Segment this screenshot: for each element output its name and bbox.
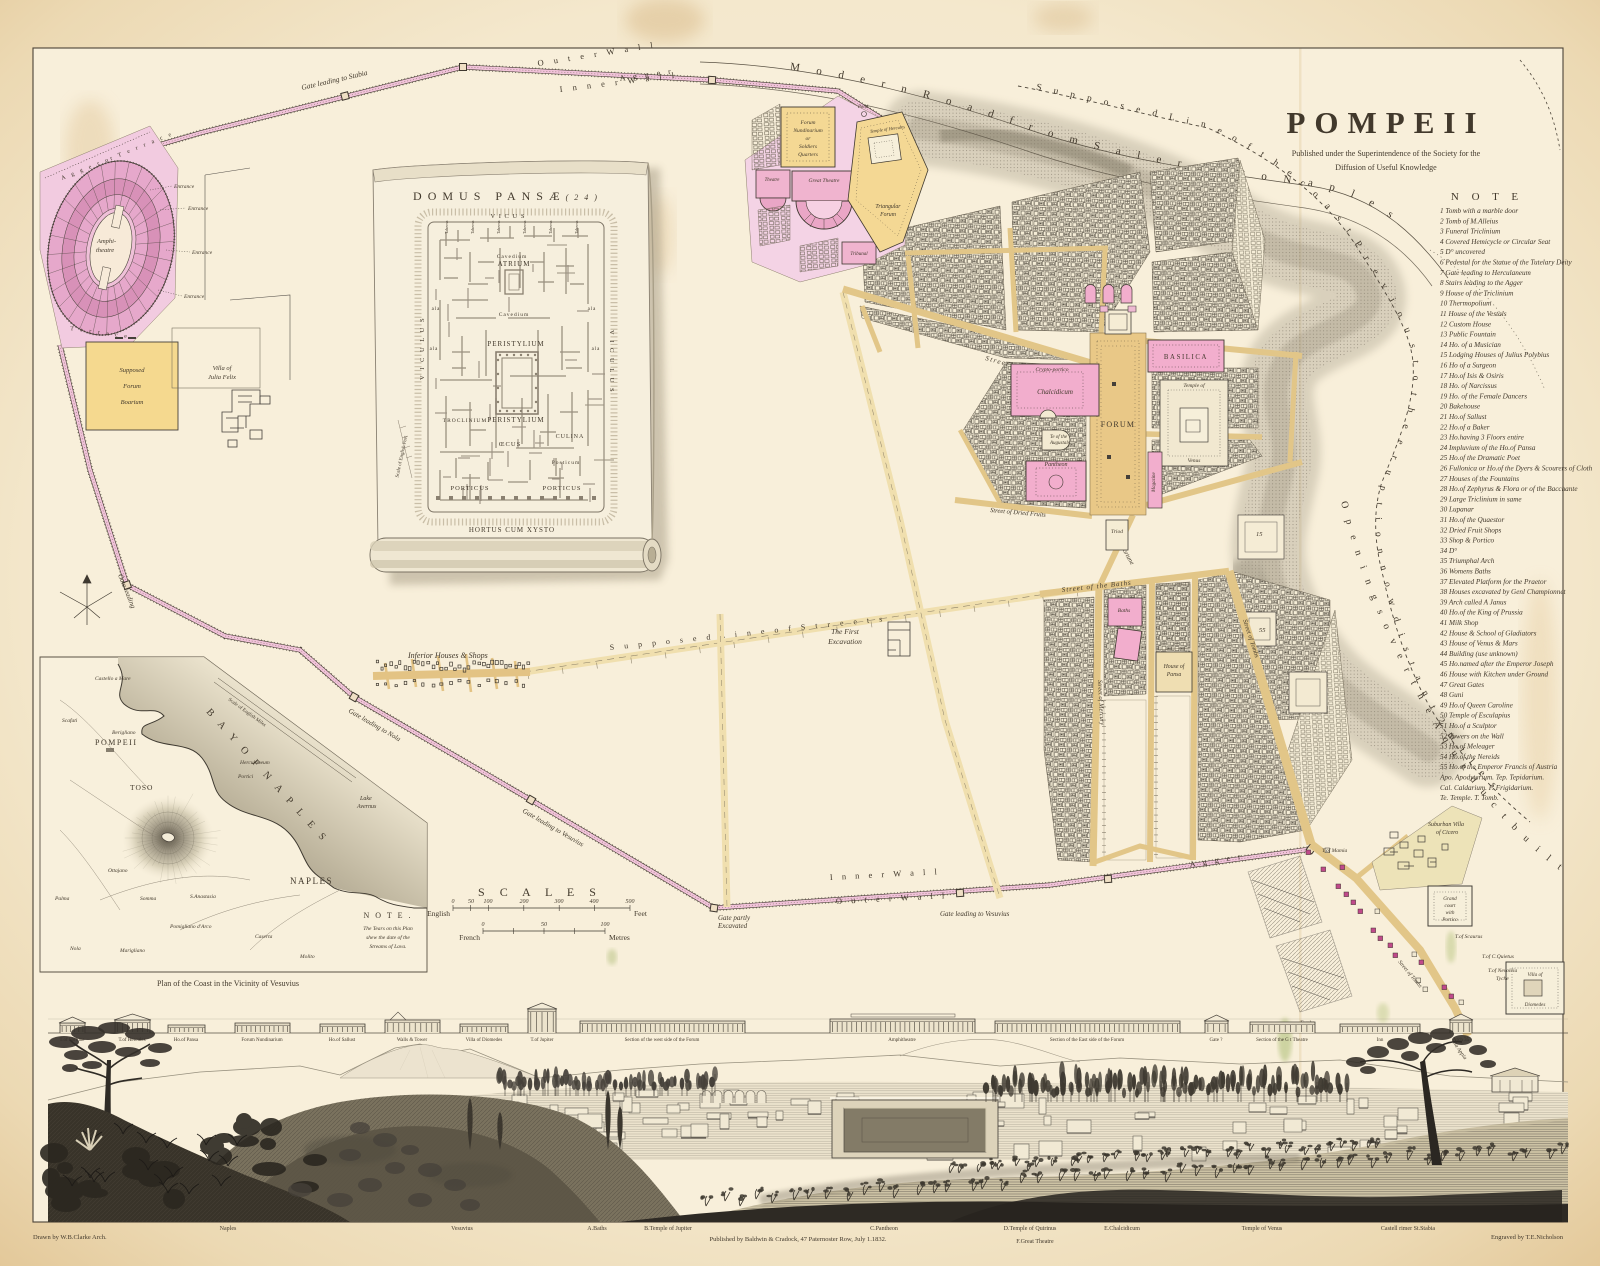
svg-text:Section of the East side of th: Section of the East side of the Forum [1050,1038,1124,1043]
svg-text:Molito: Molito [299,954,315,960]
svg-text:37 Elevated Platform for the P: 37 Elevated Platform for the Praetor [1439,578,1547,586]
svg-text:Feet: Feet [634,909,648,918]
svg-text:Drawn by W.B.Clarke Arch.: Drawn by W.B.Clarke Arch. [33,1234,107,1241]
svg-text:Engraved by T.E.Nicholson: Engraved by T.E.Nicholson [1491,1234,1564,1241]
svg-text:T.of Mamia: T.of Mamia [1322,847,1348,854]
svg-text:15 Lodging Houses of Julius Po: 15 Lodging Houses of Julius Polybius [1440,351,1549,359]
svg-text:Tyche: Tyche [1496,976,1509,982]
svg-text:4 Covered Hemicycle or Circula: 4 Covered Hemicycle or Circular Seat [1440,238,1551,246]
svg-text:49 Ho.of Queen Caroline: 49 Ho.of Queen Caroline [1440,701,1514,709]
svg-text:500: 500 [626,899,635,905]
svg-text:PORTICUS: PORTICUS [450,485,489,492]
svg-text:Te. Temple. T. Tomb.: Te. Temple. T. Tomb. [1440,794,1499,802]
svg-text:Inferior Houses & Shops: Inferior Houses & Shops [407,651,488,660]
svg-text:V I C U S: V I C U S [491,213,526,220]
svg-text:Berigliano: Berigliano [112,730,136,736]
svg-text:Posticum: Posticum [552,460,580,466]
svg-text:22 Ho.of a Baker: 22 Ho.of a Baker [1440,423,1490,431]
svg-text:39 Arch called A Janus: 39 Arch called A Janus [1439,598,1507,606]
svg-text:Published under the Superinten: Published under the Superintendence of t… [1292,149,1481,158]
svg-text:Triod: Triod [1111,529,1123,535]
svg-text:42 House & School of Gladiator: 42 House & School of Gladiators [1440,629,1537,637]
svg-text:14 Ho. of a Musician: 14 Ho. of a Musician [1440,341,1501,349]
svg-text:Published by Baldwin & Cradock: Published by Baldwin & Cradock, 47 Pater… [709,1236,886,1243]
svg-text:Taberna: Taberna [470,220,475,234]
svg-text:Marigliano: Marigliano [119,948,145,954]
svg-text:Herculaneum: Herculaneum [239,760,270,766]
svg-text:47 Great Gates: 47 Great Gates [1440,681,1484,689]
svg-text:300: 300 [554,899,564,905]
svg-text:of Cicero: of Cicero [1436,829,1458,836]
svg-text:FORUM: FORUM [1101,420,1135,429]
svg-text:ala: ala [430,347,439,352]
svg-text:Chalcidicum: Chalcidicum [1037,388,1073,396]
svg-text:50: 50 [468,899,474,905]
svg-text:Scafati: Scafati [62,717,78,724]
svg-text:Theatre: Theatre [765,178,781,183]
svg-text:12 Custom House: 12 Custom House [1440,320,1492,328]
svg-text:10 Thermopolium: 10 Thermopolium [1440,300,1491,308]
svg-text:or: or [806,136,812,142]
svg-text:Villa of: Villa of [1527,971,1544,978]
svg-text:C.Pantheon: C.Pantheon [870,1226,898,1232]
svg-text:D.Temple of Quirinus: D.Temple of Quirinus [1004,1225,1057,1232]
svg-text:BASILICA: BASILICA [1164,354,1208,361]
svg-text:32 Dried Fruit Shops: 32 Dried Fruit Shops [1439,526,1501,534]
svg-text:V I C U L U S: V I C U L U S [608,330,615,394]
svg-text:30 Lupanar: 30 Lupanar [1439,506,1474,514]
svg-text:40 Ho.of the King of Prussia: 40 Ho.of the King of Prussia [1440,609,1523,617]
svg-text:21 Ho.of Sallust: 21 Ho.of Sallust [1440,413,1488,421]
svg-text:Triangular: Triangular [875,204,901,210]
svg-text:B.Temple of Jupiter: B.Temple of Jupiter [644,1225,692,1232]
svg-text:Taberna: Taberna [574,220,579,234]
svg-text:POMPEII: POMPEII [95,738,138,747]
svg-text:26 Fullonica or Ho.of the Dyer: 26 Fullonica or Ho.of the Dyers & Scoure… [1440,465,1593,473]
svg-text:Forum: Forum [800,120,816,126]
svg-text:1 Tomb with a marble door: 1 Tomb with a marble door [1440,207,1518,215]
svg-text:Villa of Diomedes: Villa of Diomedes [466,1038,503,1043]
svg-text:Naples: Naples [220,1226,237,1232]
svg-text:Plan of the Coast in the Vicin: Plan of the Coast in the Vicinity of Ves… [157,979,299,988]
svg-text:27 Houses of the Fountains: 27 Houses of the Fountains [1440,475,1519,483]
svg-text:23 Ho.having 3 Floors entire: 23 Ho.having 3 Floors entire [1440,434,1525,442]
svg-text:Metres: Metres [609,933,630,942]
svg-text:PERISTYLIUM: PERISTYLIUM [487,416,544,424]
svg-text:34 D°: 34 D° [1439,547,1457,555]
svg-text:Amphitheatre: Amphitheatre [888,1038,916,1043]
svg-text:Great Theatre: Great Theatre [809,178,840,184]
svg-text:Temple of Venus: Temple of Venus [1242,1225,1283,1232]
svg-text:Section of the west side of th: Section of the west side of the Forum [625,1038,700,1043]
svg-text:Taberna: Taberna [444,220,449,234]
svg-text:Entrance: Entrance [191,250,213,256]
svg-text:Gate ?: Gate ? [1210,1038,1224,1043]
svg-text:Boarium: Boarium [121,399,144,406]
svg-text:NAPLES: NAPLES [290,876,333,886]
svg-text:The Tears on this Plan: The Tears on this Plan [363,926,413,932]
svg-text:43 House of Venus & Mars: 43 House of Venus & Mars [1440,640,1518,648]
svg-text:T.of C.Quietus: T.of C.Quietus [1482,953,1514,960]
svg-text:Taberna: Taberna [496,220,501,234]
svg-text:Ho.of Pansa: Ho.of Pansa [174,1038,199,1043]
svg-text:Grand: Grand [1443,896,1457,902]
svg-text:PERISTYLIUM: PERISTYLIUM [487,340,544,348]
svg-text:Inn: Inn [1377,1038,1384,1043]
svg-text:28 Ho.of Zephyrus & Flora or o: 28 Ho.of Zephyrus & Flora or of the Bacc… [1440,485,1578,493]
svg-text:Cavedium: Cavedium [497,254,528,260]
svg-text:Cal. Caldarium. F. Frigidarium: Cal. Caldarium. F. Frigidarium. [1440,784,1533,792]
svg-text:Lake: Lake [359,796,372,802]
svg-text:41 Milk Shop: 41 Milk Shop [1440,619,1479,627]
svg-text:Excavated: Excavated [717,922,748,930]
svg-text:court: court [1445,903,1457,909]
svg-text:T.of Scaurus: T.of Scaurus [1455,933,1482,940]
svg-text:50: 50 [541,922,547,928]
svg-text:400: 400 [590,898,599,905]
svg-text:T.of Nevoleia: T.of Nevoleia [1488,967,1517,974]
svg-text:ala: ala [592,347,601,352]
svg-text:Suburban Villa: Suburban Villa [1428,822,1464,828]
svg-text:with: with [1446,910,1455,916]
svg-text:E.Chalcidicum: E.Chalcidicum [1104,1226,1140,1232]
svg-text:2 Tomb of M.Alleius: 2 Tomb of M.Alleius [1440,217,1498,225]
svg-text:Ottajano: Ottajano [108,868,128,874]
svg-text:S.Anastasia: S.Anastasia [190,894,216,900]
svg-text:6 Pedestal for the Statue of t: 6 Pedestal for the Statue of the Tutelar… [1440,259,1573,267]
svg-text:theatre: theatre [96,247,114,254]
svg-text:ATRIUM: ATRIUM [498,260,531,268]
svg-text:50 Temple of Esculapius: 50 Temple of Esculapius [1440,712,1510,720]
svg-text:Nola: Nola [69,946,81,952]
svg-text:POMPEII: POMPEII [1286,105,1485,140]
svg-text:Te of the: Te of the [1050,435,1068,440]
svg-text:Streams of Lava.: Streams of Lava. [370,943,407,950]
svg-text:Crypto-portico: Crypto-portico [1036,367,1069,373]
svg-text:7 Gate leading to Herculaneum: 7 Gate leading to Herculaneum [1440,269,1531,277]
svg-text:51 Ho.of a Sculptor: 51 Ho.of a Sculptor [1440,722,1497,730]
svg-text:Castell rimer St.Stabia: Castell rimer St.Stabia [1381,1226,1435,1232]
svg-text:Tribunal: Tribunal [850,252,868,257]
svg-text:N O T E .: N O T E . [363,911,412,920]
svg-text:11 House of the Vestals: 11 House of the Vestals [1440,310,1507,318]
svg-text:Pomigliano d'Arco: Pomigliano d'Arco [169,924,212,930]
svg-text:29 Large Triclinium in same: 29 Large Triclinium in same [1440,495,1522,503]
svg-text:Magazine: Magazine [1152,472,1157,494]
svg-text:Entrance: Entrance [183,294,205,300]
svg-text:45 Ho.named after the Emperor: 45 Ho.named after the Emperor Joseph [1440,660,1554,668]
svg-text:Forum: Forum [122,383,141,390]
svg-text:200: 200 [520,899,529,905]
svg-text:Castello a Mare: Castello a Mare [95,676,131,682]
svg-text:Portici: Portici [237,774,254,780]
svg-text:T.of Jupiter: T.of Jupiter [531,1038,554,1043]
svg-text:Diffusion of Useful Knowledge: Diffusion of Useful Knowledge [1335,163,1437,172]
svg-text:Avernus: Avernus [356,804,377,810]
svg-text:18 Ho. of Narcissus: 18 Ho. of Narcissus [1440,382,1497,390]
svg-text:F.Great Theatre: F.Great Theatre [1016,1239,1054,1245]
svg-text:S C A L E S: S C A L E S [478,885,602,899]
svg-text:English: English [427,909,450,918]
svg-text:35 Triumphal Arch: 35 Triumphal Arch [1439,557,1495,565]
svg-text:3 Funeral Triclinium: 3 Funeral Triclinium [1439,228,1500,236]
svg-text:Villa of: Villa of [213,365,233,372]
svg-text:TROCLINIUM: TROCLINIUM [443,418,488,424]
svg-text:Forum Nundinarium: Forum Nundinarium [241,1038,282,1043]
svg-text:Pond: Pond [857,105,869,110]
svg-text:Taberna: Taberna [548,220,553,234]
svg-text:A.Baths: A.Baths [587,1226,607,1232]
svg-text:19 Ho. of the Female Dancers: 19 Ho. of the Female Dancers [1440,392,1527,400]
svg-text:Somma: Somma [140,896,156,902]
svg-text:The First: The First [831,627,860,636]
svg-text:Gate partly: Gate partly [718,914,751,922]
svg-text:Caserta: Caserta [255,934,273,940]
svg-text:Amphi-: Amphi- [96,238,116,245]
svg-text:PORTICUS: PORTICUS [542,485,581,492]
svg-text:Palma: Palma [54,896,70,902]
svg-text:Vesuvius: Vesuvius [451,1226,473,1232]
svg-text:Supposed: Supposed [120,367,146,374]
svg-text:0: 0 [452,899,455,905]
svg-text:TOSO: TOSO [130,783,153,792]
svg-text:5 D° uncovered: 5 D° uncovered [1440,248,1485,256]
svg-text:Entrance: Entrance [187,206,209,212]
svg-text:15: 15 [1256,531,1263,538]
svg-text:Excavation: Excavation [827,637,862,646]
svg-text:V I C U L U S: V I C U L U S [419,316,426,380]
svg-text:House of: House of [1163,663,1186,670]
svg-text:Quarters: Quarters [798,152,818,158]
svg-text:33 Shop & Portico: 33 Shop & Portico [1439,537,1495,545]
svg-text:Augustals: Augustals [1049,441,1070,446]
svg-text:ŒCUS: ŒCUS [499,441,521,448]
svg-text:CULINA: CULINA [556,434,585,440]
svg-text:48 Guni: 48 Guni [1440,691,1463,699]
svg-text:shew the date of the: shew the date of the [366,934,410,941]
svg-text:HORTUS CUM XYSTO: HORTUS CUM XYSTO [469,526,555,534]
svg-text:Ho.of Sallust: Ho.of Sallust [329,1038,356,1043]
svg-text:44 Building (use unknown): 44 Building (use unknown) [1440,650,1518,658]
svg-text:17 Ho.of Isis & Osiris: 17 Ho.of Isis & Osiris [1440,372,1504,380]
svg-text:Pantheon: Pantheon [1044,462,1068,468]
svg-text:Soldiers: Soldiers [799,144,817,150]
svg-text:Venus: Venus [1188,458,1201,464]
svg-text:N O T E: N O T E [1451,191,1523,203]
svg-text:Baths: Baths [1118,608,1131,614]
svg-text:13 Public Fountain: 13 Public Fountain [1440,331,1496,339]
svg-text:Section of the G t Theatre: Section of the G t Theatre [1256,1038,1308,1043]
svg-text:46 House with Kitchen under Gr: 46 House with Kitchen under Ground [1440,671,1549,679]
svg-text:8 Stairs leading to the Agger: 8 Stairs leading to the Agger [1440,279,1523,287]
svg-text:Forum: Forum [879,212,896,218]
svg-text:French: French [459,933,480,942]
svg-text:Julia Felix: Julia Felix [208,374,236,381]
svg-text:9 House of the Triclinium: 9 House of the Triclinium [1440,289,1513,297]
svg-text:Temple of: Temple of [1183,382,1206,389]
svg-text:24 Impluvium of the Ho.of Pans: 24 Impluvium of the Ho.of Pansa [1440,444,1536,452]
svg-text:Apo. Apodyterium. Tep. Tepidar: Apo. Apodyterium. Tep. Tepidarium. [1439,774,1544,782]
svg-text:53 Ho.of Meleager: 53 Ho.of Meleager [1440,743,1495,751]
svg-text:Entrance: Entrance [173,184,195,190]
svg-text:54 Ho.of the Nereids: 54 Ho.of the Nereids [1440,753,1500,761]
svg-text:25 Ho.of the Dramatic Poet: 25 Ho.of the Dramatic Poet [1440,454,1521,462]
svg-text:52 Towers on the Wall: 52 Towers on the Wall [1440,732,1504,740]
svg-text:Taberna: Taberna [522,220,527,234]
svg-text:Pansa: Pansa [1166,672,1182,678]
svg-text:Nundinarium: Nundinarium [792,128,822,134]
svg-text:ala: ala [588,307,597,312]
svg-text:31 Ho.of the Quaestor: 31 Ho.of the Quaestor [1439,516,1504,524]
svg-text:0: 0 [482,922,485,928]
svg-text:55: 55 [1259,627,1266,634]
svg-text:Gate leading to Vesuvius: Gate leading to Vesuvius [940,910,1010,918]
svg-text:36 Womens Baths: 36 Womens Baths [1439,568,1491,576]
svg-text:Walls & Tower: Walls & Tower [397,1038,428,1043]
svg-text:20 Bakehouse: 20 Bakehouse [1440,403,1481,411]
svg-text:100: 100 [484,899,493,905]
svg-text:38 Houses excavated by Genl Ch: 38 Houses excavated by Genl Championnet [1439,588,1567,596]
svg-text:55 Ho.of the Emperor Francis o: 55 Ho.of the Emperor Francis of Austria [1440,763,1558,771]
svg-text:Diomedes: Diomedes [1524,1002,1546,1008]
svg-text:ala: ala [432,307,441,312]
svg-text:16 Ho of a Surgeon: 16 Ho of a Surgeon [1440,362,1496,370]
svg-text:100: 100 [601,922,610,928]
svg-text:Portico: Portico [1441,917,1458,923]
svg-text:Cavedium: Cavedium [499,312,530,318]
